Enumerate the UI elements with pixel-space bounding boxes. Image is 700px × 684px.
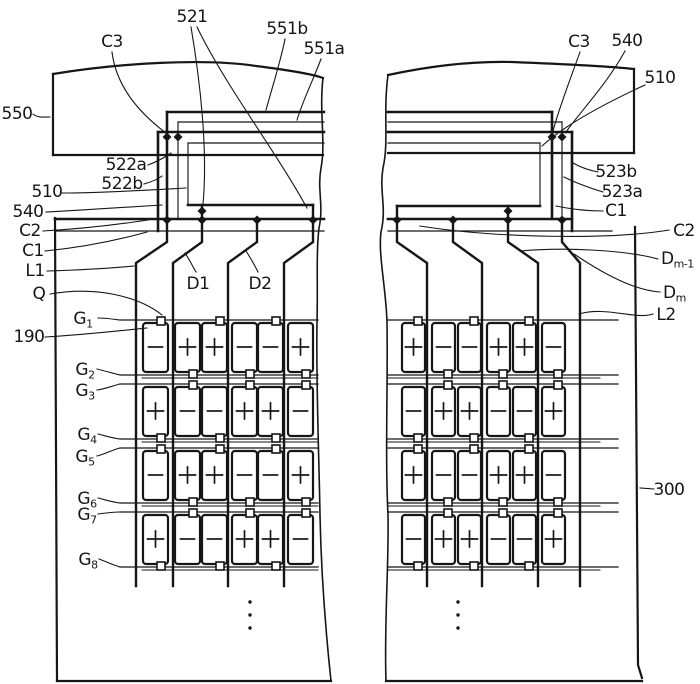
continuation-dot: [248, 613, 251, 616]
patent-figure: 550521C3551b551a522a522b510540C2C1L1Q190…: [0, 0, 700, 684]
tft-pad: [499, 509, 507, 517]
label-190: 190: [14, 327, 45, 347]
tft-pad: [554, 509, 562, 517]
tft-pad: [525, 434, 533, 442]
tft-pad: [302, 498, 310, 506]
tft-pad: [302, 370, 310, 378]
label-522b: 522b: [101, 174, 142, 194]
tft-pad: [444, 509, 452, 517]
label-551b: 551b: [266, 19, 307, 39]
tft-pad: [157, 445, 165, 453]
tft-pad: [157, 434, 165, 442]
tft-pad: [216, 445, 224, 453]
tft-pad: [499, 381, 507, 389]
patent-figure-canvas: 550521C3551b551a522a522b510540C2C1L1Q190…: [0, 0, 700, 684]
label-c2-left: C2: [19, 221, 41, 241]
label-d1: D1: [187, 274, 210, 294]
continuation-dot: [248, 626, 251, 629]
tft-pad: [499, 370, 507, 378]
tft-pad: [525, 562, 533, 570]
tft-pad: [246, 509, 254, 517]
tft-pad: [554, 381, 562, 389]
tft-pad: [525, 317, 533, 325]
label-c3-left: C3: [101, 32, 123, 52]
tft-pad: [414, 317, 422, 325]
tft-pad: [216, 317, 224, 325]
tft-pad: [554, 370, 562, 378]
tft-pad: [302, 509, 310, 517]
tft-pad: [414, 562, 422, 570]
label-c3-right: C3: [568, 32, 590, 52]
tft-pad: [470, 562, 478, 570]
tft-pad: [216, 562, 224, 570]
tft-pad: [189, 498, 197, 506]
label-551a: 551a: [304, 39, 345, 59]
tft-pad: [189, 370, 197, 378]
tft-pad: [189, 509, 197, 517]
tft-pad: [246, 498, 254, 506]
tft-pad: [444, 370, 452, 378]
tft-pad: [216, 434, 224, 442]
tft-pad: [157, 317, 165, 325]
label-300: 300: [654, 480, 685, 500]
tft-pad: [272, 434, 280, 442]
tft-pad: [272, 445, 280, 453]
label-l1: L1: [25, 261, 44, 281]
tft-pad: [414, 445, 422, 453]
tft-pad: [189, 381, 197, 389]
label-522a: 522a: [106, 155, 147, 175]
label-550: 550: [2, 104, 33, 124]
tft-pad: [246, 370, 254, 378]
tft-pad: [470, 434, 478, 442]
continuation-dot: [456, 626, 459, 629]
label-540-right: 540: [612, 31, 643, 51]
label-c1-left: C1: [22, 241, 44, 261]
label-523b: 523b: [595, 162, 636, 182]
tft-pad: [444, 498, 452, 506]
label-c1-right: C1: [605, 201, 627, 221]
label-d2: D2: [249, 274, 272, 294]
label-510-right: 510: [645, 68, 676, 88]
tft-pad: [414, 434, 422, 442]
tft-pad: [470, 317, 478, 325]
label-c2-right: C2: [673, 221, 695, 241]
label-l2: L2: [656, 305, 675, 325]
tft-pad: [246, 381, 254, 389]
tft-pad: [470, 445, 478, 453]
tft-pad: [272, 562, 280, 570]
figure-background: [0, 0, 700, 684]
label-523a: 523a: [602, 182, 643, 202]
label-510-left: 510: [32, 182, 63, 202]
tft-pad: [272, 317, 280, 325]
tft-pad: [157, 562, 165, 570]
tft-pad: [499, 498, 507, 506]
label-q: Q: [33, 284, 46, 304]
tft-pad: [554, 498, 562, 506]
tft-pad: [444, 381, 452, 389]
continuation-dot: [456, 600, 459, 603]
label-521: 521: [177, 7, 208, 27]
continuation-dot: [248, 600, 251, 603]
label-540-left: 540: [13, 202, 44, 222]
tft-pad: [302, 381, 310, 389]
tft-pad: [525, 445, 533, 453]
continuation-dot: [456, 613, 459, 616]
